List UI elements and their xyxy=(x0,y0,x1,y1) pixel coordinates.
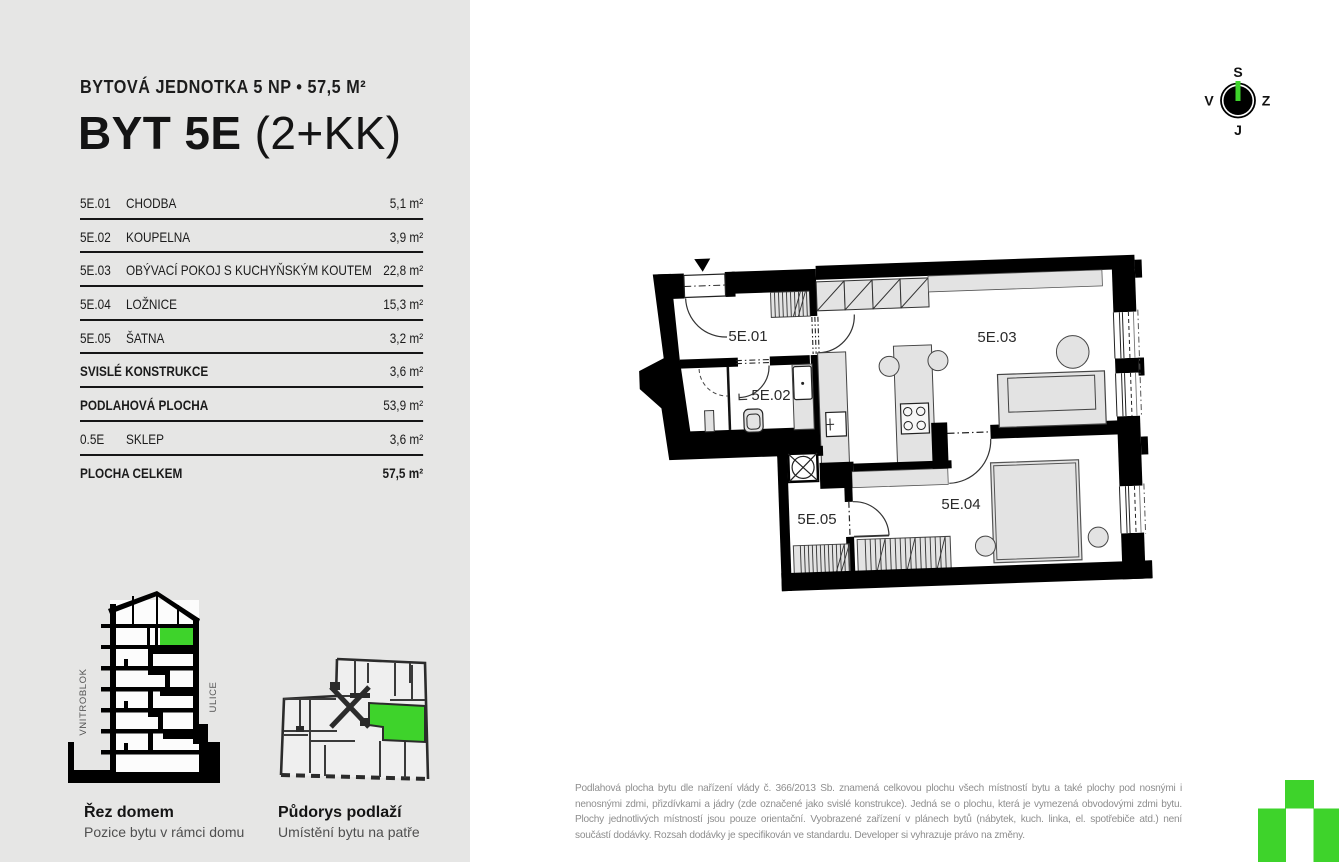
svg-text:S: S xyxy=(1233,64,1242,80)
svg-text:5E.05: 5E.05 xyxy=(797,511,836,528)
svg-text:J: J xyxy=(1234,122,1242,138)
svg-text:5E.01: 5E.01 xyxy=(728,328,767,345)
svg-text:V: V xyxy=(1204,93,1214,109)
svg-text:ULICE: ULICE xyxy=(208,682,219,713)
svg-text:5E.03: 5E.03 xyxy=(977,329,1016,346)
svg-text:5E.04: 5E.04 xyxy=(941,496,980,513)
svg-text:5E.02: 5E.02 xyxy=(751,387,790,404)
svg-text:VNITROBLOK: VNITROBLOK xyxy=(78,668,89,735)
svg-text:Z: Z xyxy=(1262,93,1271,109)
